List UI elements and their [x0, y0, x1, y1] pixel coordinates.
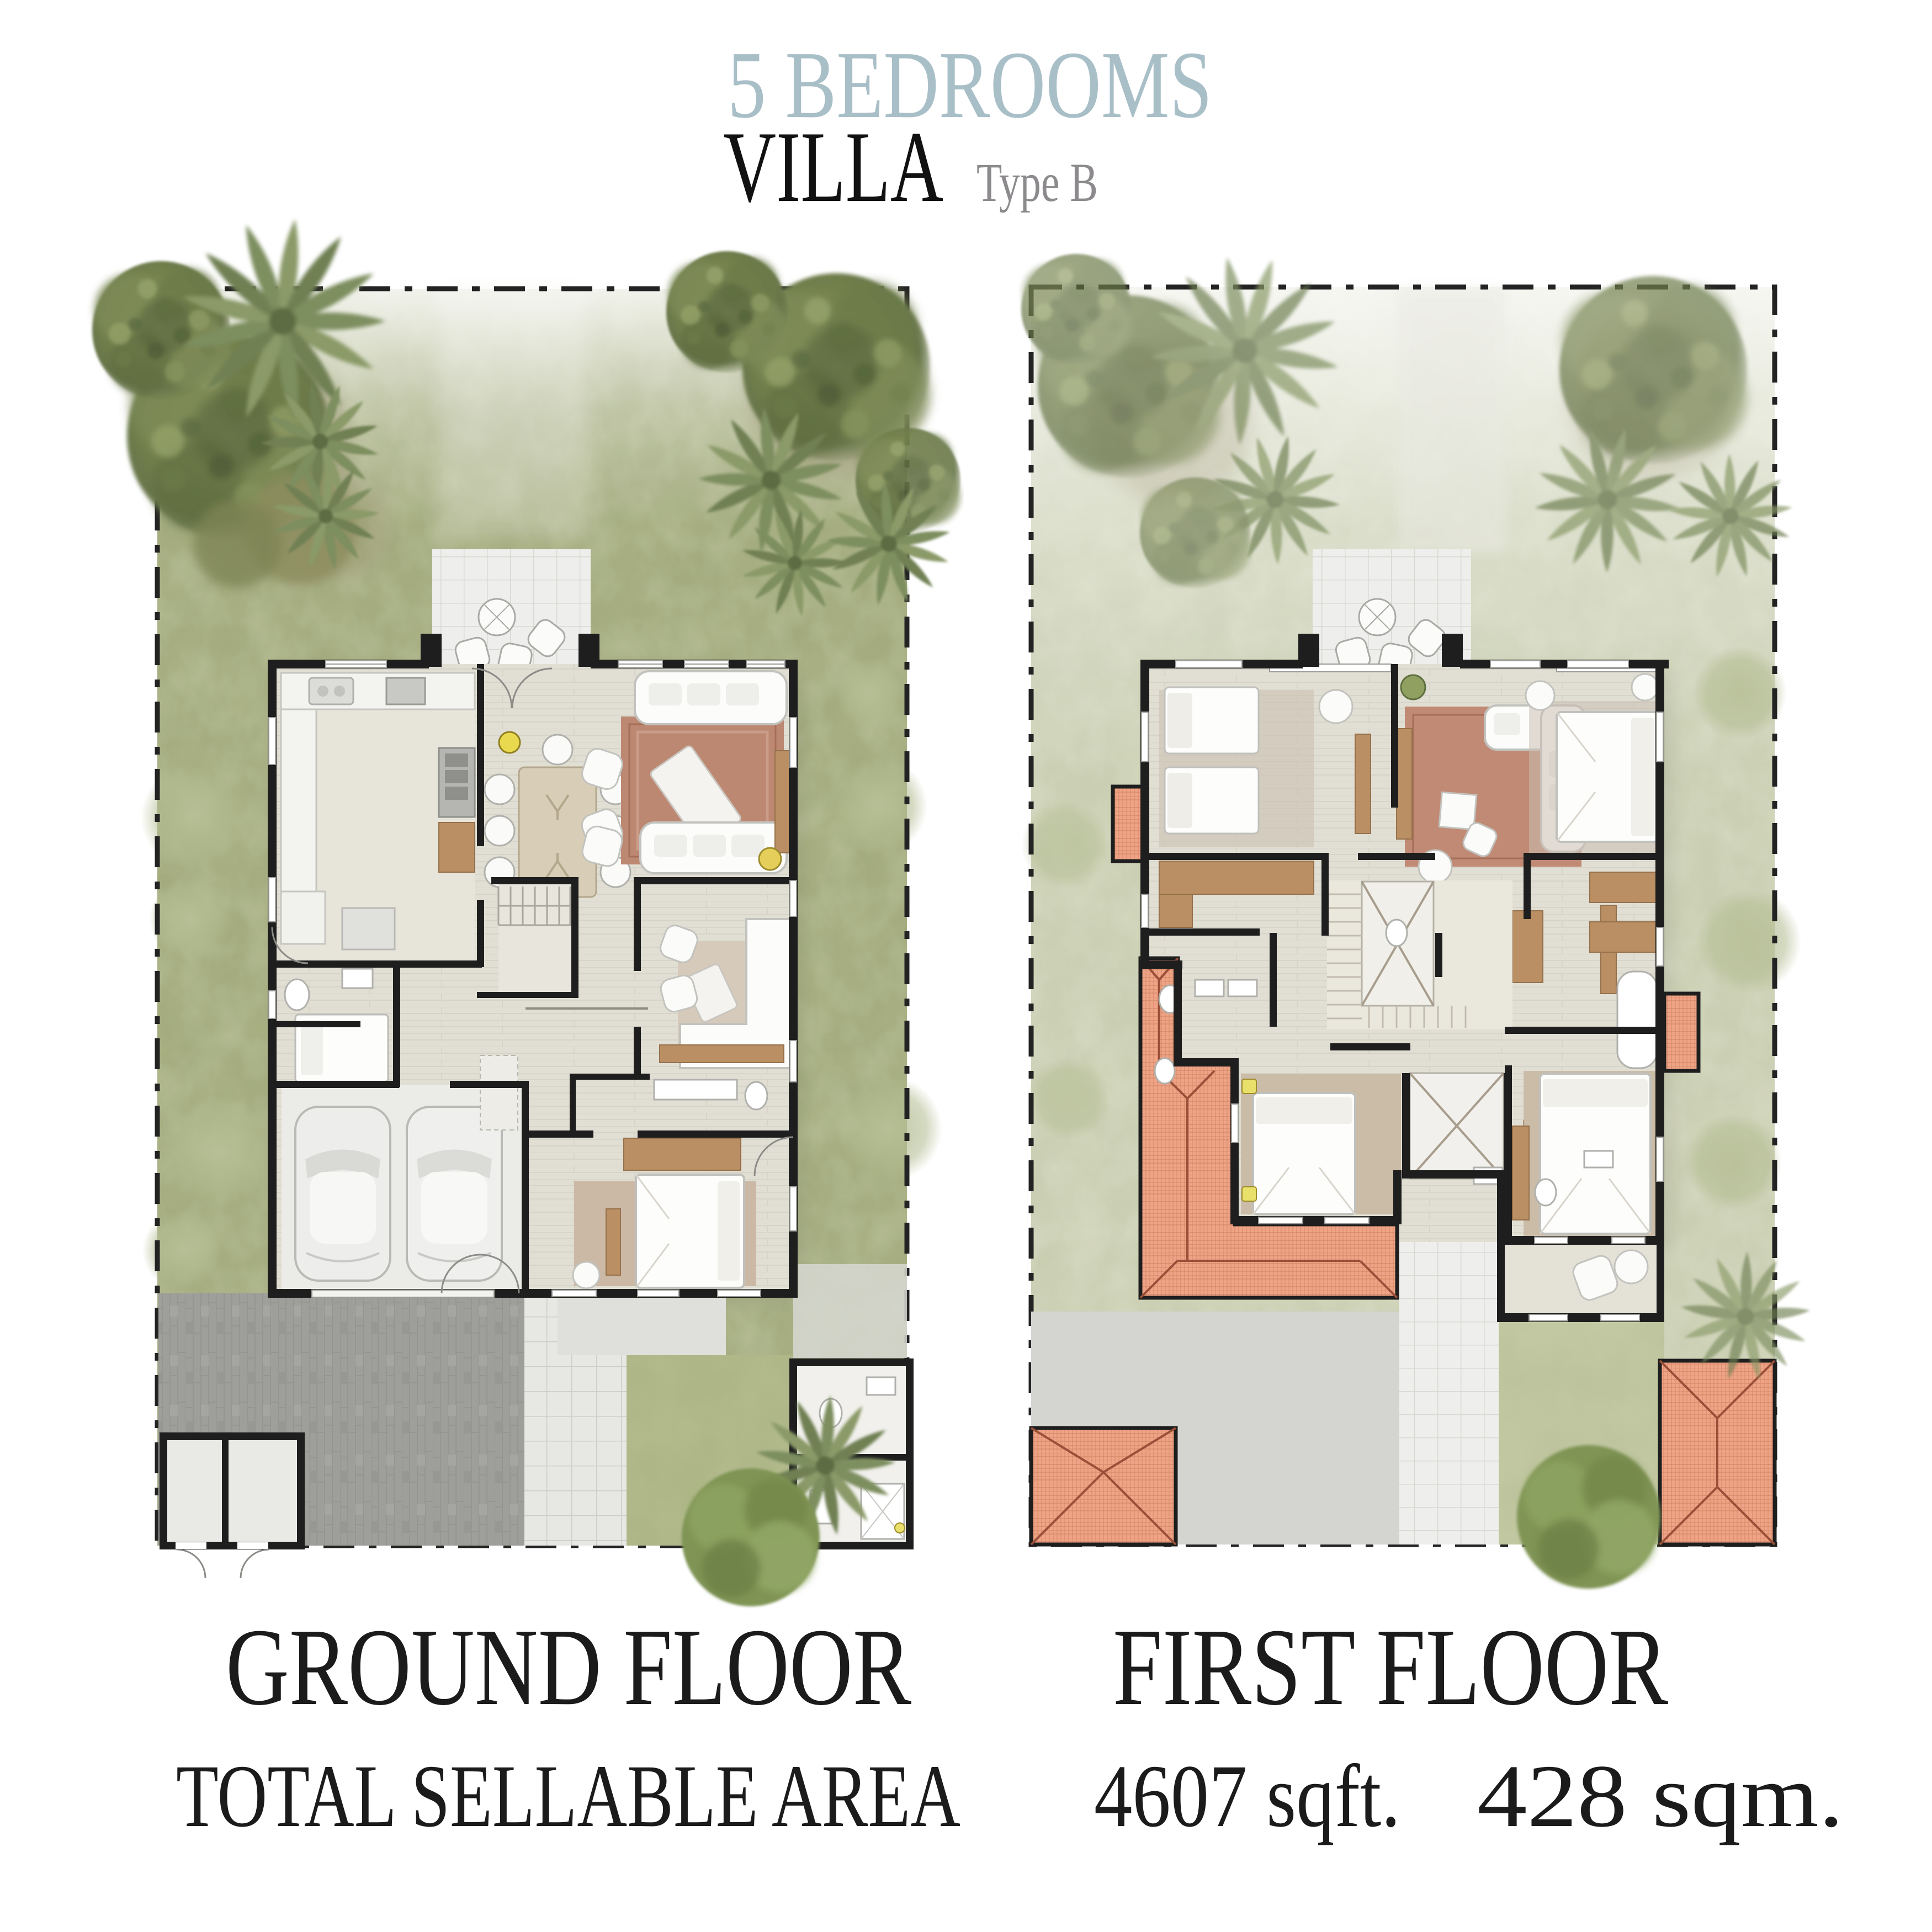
svg-text:VILLA: VILLA — [723, 110, 943, 223]
svg-text:FIRST FLOOR: FIRST FLOOR — [1113, 1606, 1668, 1728]
svg-text:GROUND FLOOR: GROUND FLOOR — [226, 1606, 911, 1728]
svg-text:4607 sqft.: 4607 sqft. — [1094, 1747, 1400, 1846]
svg-text:TOTAL SELLABLE AREA: TOTAL SELLABLE AREA — [176, 1747, 960, 1846]
svg-text:428 sqm.: 428 sqm. — [1477, 1747, 1844, 1846]
svg-text:Type B: Type B — [976, 152, 1098, 213]
